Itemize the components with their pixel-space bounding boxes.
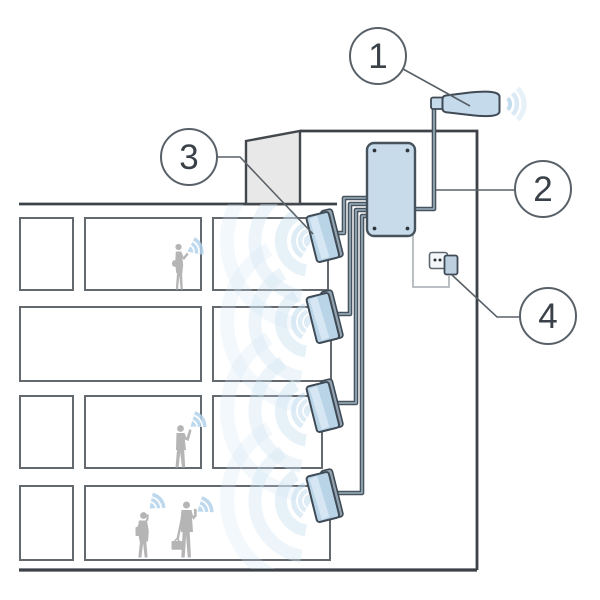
power-outlet [430,253,458,275]
amplifier-screw [406,227,410,231]
callout-2-label: 2 [533,170,552,209]
amplifier-screw [373,149,377,153]
outdoor-signal-waves [508,88,524,119]
callout-4-line [452,275,520,317]
window-f4-c1 [20,218,73,290]
window-f3-wide [20,307,201,381]
repeater-diagram: 1 2 3 4 [0,0,600,600]
diagram-stage: 1 2 3 4 [0,0,600,600]
amplifier-screw [373,227,377,231]
plug [445,256,458,275]
amplifier-body [367,143,415,236]
roof-structure [246,131,300,204]
feeder-cable [415,109,434,209]
window-f1-c1 [20,486,73,560]
window-f4-c2 [85,218,201,290]
callout-4-label: 4 [538,297,557,336]
amplifier-screw [406,149,410,153]
callout-1-label: 1 [368,37,387,76]
outlet-hole [439,259,442,262]
callout-3-label: 3 [179,138,198,177]
window-f2-c1 [20,396,73,468]
amplifier-unit [367,143,415,236]
outlet-hole [434,259,437,262]
